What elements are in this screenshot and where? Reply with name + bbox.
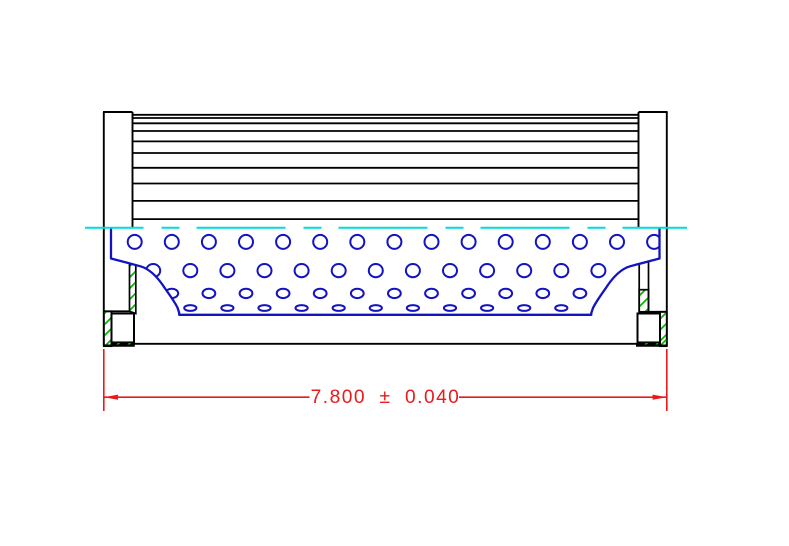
svg-text:7.800 ± 0.040: 7.800 ± 0.040 — [311, 387, 461, 408]
